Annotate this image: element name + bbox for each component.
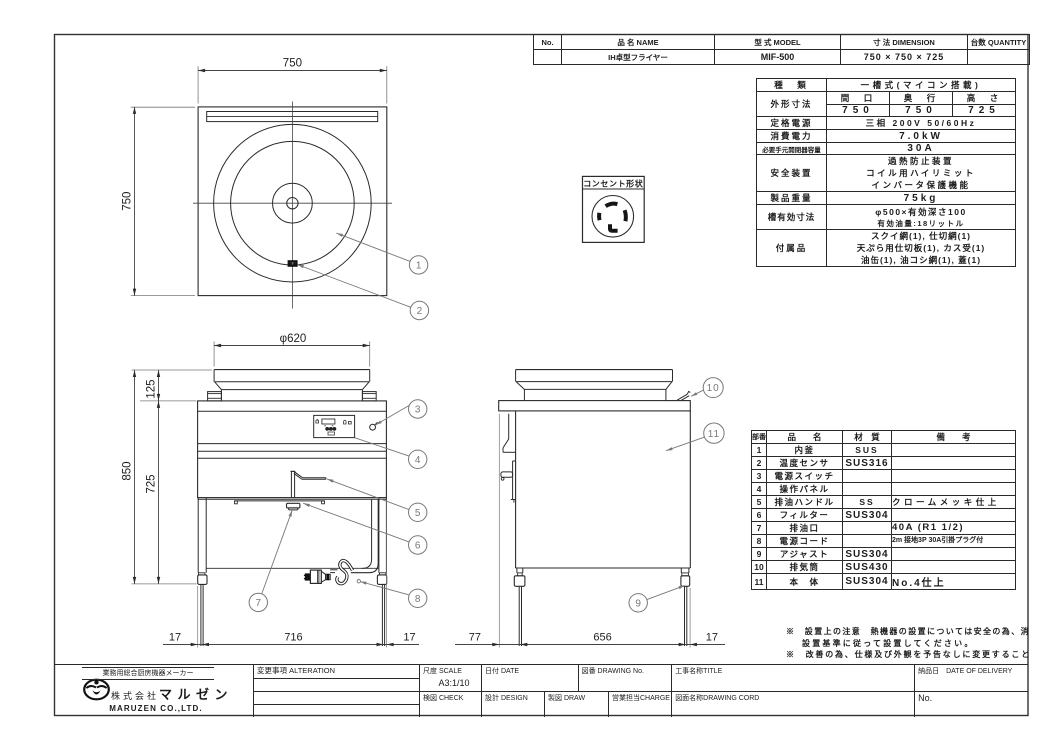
svg-text:φ620: φ620 (280, 333, 307, 345)
svg-text:3: 3 (415, 405, 421, 416)
svg-text:6: 6 (415, 541, 421, 552)
svg-text:11: 11 (708, 429, 720, 440)
svg-text:656: 656 (593, 632, 611, 644)
svg-text:1: 1 (416, 261, 422, 272)
svg-text:716: 716 (284, 632, 302, 644)
svg-text:5: 5 (415, 508, 421, 519)
svg-text:17: 17 (706, 632, 718, 644)
svg-text:750: 750 (122, 192, 134, 211)
svg-text:725: 725 (146, 474, 158, 493)
svg-text:125: 125 (146, 379, 158, 398)
svg-text:7: 7 (256, 598, 262, 609)
svg-text:9: 9 (635, 598, 641, 609)
svg-text:2: 2 (417, 306, 423, 317)
svg-text:17: 17 (403, 632, 415, 644)
svg-text:17: 17 (169, 632, 181, 644)
svg-text:4: 4 (415, 455, 421, 466)
svg-text:750: 750 (283, 58, 302, 70)
svg-text:10: 10 (707, 383, 720, 394)
svg-text:77: 77 (469, 632, 481, 644)
svg-text:850: 850 (122, 461, 134, 480)
svg-text:8: 8 (415, 594, 421, 605)
svg-text:コンセント形状: コンセント形状 (583, 178, 644, 188)
